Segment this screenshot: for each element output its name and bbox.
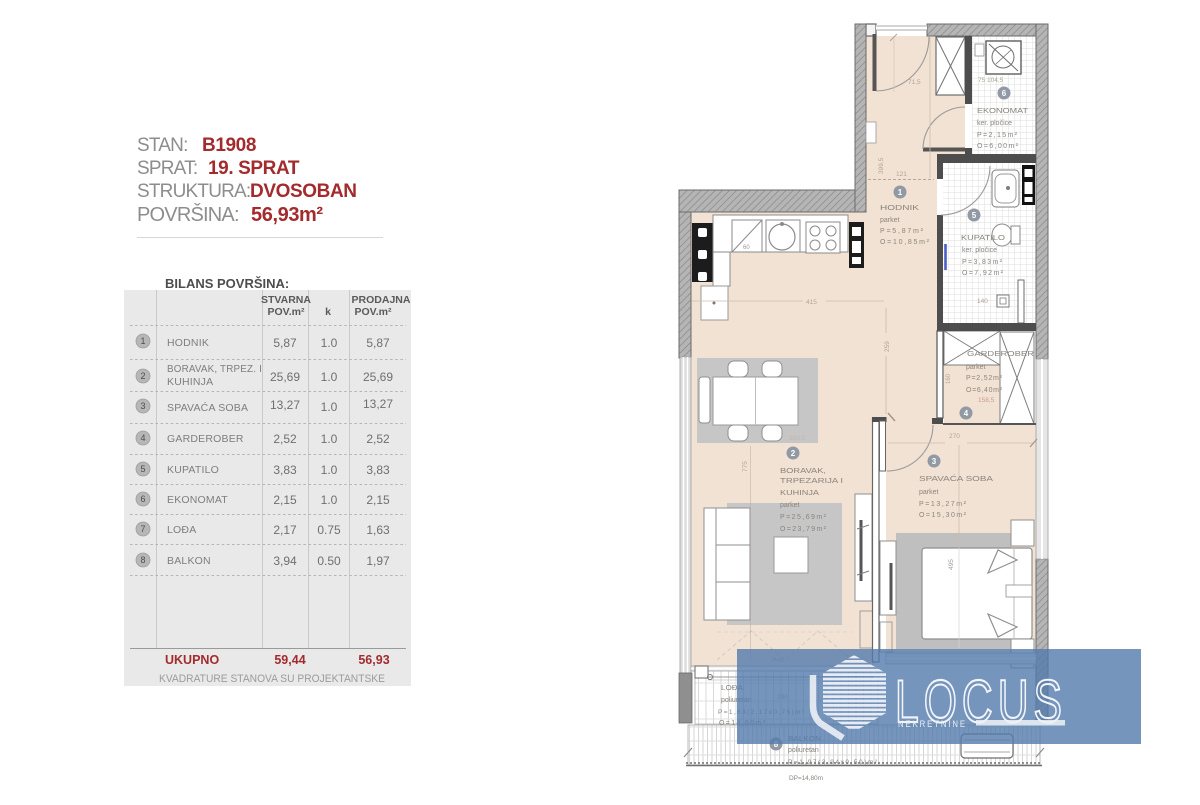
svg-text:3,83: 3,83 [273,463,297,477]
svg-text:1.0: 1.0 [321,370,338,384]
svg-text:2,15: 2,15 [366,493,390,507]
svg-text:1.0: 1.0 [321,493,338,507]
svg-text:O=6,40m²: O=6,40m² [966,387,1003,394]
svg-text:BORAVAK,: BORAVAK, [780,466,826,475]
svg-text:KUHINJA: KUHINJA [780,488,820,497]
svg-text:SPAVAĆA SOBA: SPAVAĆA SOBA [167,401,248,414]
svg-text:5,87: 5,87 [273,336,297,350]
svg-text:4: 4 [140,433,145,443]
svg-text:495: 495 [948,559,955,570]
svg-text:poliuretan: poliuretan [788,747,819,754]
svg-text:3,94: 3,94 [273,554,297,568]
svg-text:1.0: 1.0 [321,432,338,446]
svg-text:56,93: 56,93 [358,653,389,667]
svg-text:STVARNA: STVARNA [261,294,311,306]
svg-text:NEKRETNINE: NEKRETNINE [898,719,967,729]
svg-text:75 104,5: 75 104,5 [978,77,1004,84]
svg-text:O=7,92m²: O=7,92m² [962,270,1004,277]
svg-text:2,52: 2,52 [273,432,297,446]
svg-text:POVRŠINA:: POVRŠINA: [137,203,239,226]
svg-text:303,5: 303,5 [789,435,806,442]
svg-text:140: 140 [977,298,988,305]
svg-text:P=3,83m²: P=3,83m² [962,259,1003,266]
svg-text:415: 415 [806,299,817,306]
svg-text:25,69: 25,69 [270,370,300,384]
svg-text:GARDEROBER: GARDEROBER [967,349,1035,358]
svg-text:1: 1 [898,188,903,197]
svg-text:5,87: 5,87 [366,336,390,350]
svg-text:parket: parket [780,502,800,509]
svg-text:parket: parket [966,364,986,371]
svg-text:5: 5 [972,211,977,220]
svg-text:1.0: 1.0 [321,463,338,477]
svg-text:P=2,15m²: P=2,15m² [977,132,1018,139]
svg-text:19. SPRAT: 19. SPRAT [208,158,300,179]
svg-text:O=23,79m²: O=23,79m² [780,526,827,533]
svg-text:EKONOMAT: EKONOMAT [977,106,1028,115]
svg-text:STRUKTURA:: STRUKTURA: [137,181,250,202]
svg-text:6: 6 [1002,89,1007,98]
svg-text:BORAVAK, TRPEZ. I: BORAVAK, TRPEZ. I [167,363,262,375]
svg-text:1.0: 1.0 [321,400,338,414]
svg-text:KUPATILO: KUPATILO [167,464,219,476]
svg-text:59,44: 59,44 [274,653,305,667]
svg-text:25,69: 25,69 [363,370,393,384]
svg-text:259: 259 [884,341,891,352]
svg-text:P=1,97(3,94x0,50)m²: P=1,97(3,94x0,50)m² [788,759,878,766]
svg-text:5: 5 [140,464,145,474]
svg-text:0.75: 0.75 [317,523,341,537]
svg-text:1.0: 1.0 [321,336,338,350]
svg-text:121: 121 [896,171,907,178]
svg-text:158,5: 158,5 [978,397,995,404]
svg-text:775: 775 [742,461,749,472]
svg-text:270: 270 [949,433,960,440]
svg-text:6: 6 [140,494,145,504]
svg-text:KUHINJA: KUHINJA [167,376,213,388]
svg-text:2,15: 2,15 [273,493,297,507]
svg-text:LOĐA: LOĐA [167,524,196,536]
svg-text:HODNIK: HODNIK [880,203,919,212]
svg-text:2: 2 [140,371,145,381]
svg-text:STAN:: STAN: [137,135,188,156]
svg-text:DP=14,80m: DP=14,80m [789,775,823,782]
svg-text:POV.m²: POV.m² [268,306,305,318]
svg-text:BALKON: BALKON [167,555,211,567]
svg-text:k: k [325,306,331,318]
svg-text:B1908: B1908 [202,135,256,156]
svg-text:SPAVAĆA SOBA: SPAVAĆA SOBA [919,474,994,483]
svg-text:3: 3 [932,457,937,466]
svg-text:399,5: 399,5 [878,157,885,174]
svg-text:UKUPNO: UKUPNO [165,653,219,667]
svg-text:1: 1 [140,336,145,346]
svg-text:SPRAT:: SPRAT: [137,158,197,179]
svg-text:2,17: 2,17 [273,523,297,537]
svg-text:ker. pločice: ker. pločice [962,247,997,254]
svg-text:P=2,52m²: P=2,52m² [966,375,1003,382]
svg-text:13,27: 13,27 [270,398,300,412]
svg-text:ker. pločice: ker. pločice [977,120,1012,127]
svg-text:GARDEROBER: GARDEROBER [167,433,244,445]
svg-text:O=6,00m²: O=6,00m² [977,143,1019,150]
svg-text:1,97: 1,97 [366,554,390,568]
svg-text:KVADRATURE STANOVA SU PROJEKTA: KVADRATURE STANOVA SU PROJEKTANTSKE [159,673,385,685]
svg-text:POV.m²: POV.m² [355,306,392,318]
svg-text:DVOSOBAN: DVOSOBAN [250,181,357,202]
svg-text:EKONOMAT: EKONOMAT [167,494,228,506]
svg-text:HODNIK: HODNIK [167,337,209,349]
svg-text:KUPATILO: KUPATILO [961,233,1005,242]
svg-text:3: 3 [140,401,145,411]
svg-text:P=25,69m²: P=25,69m² [780,514,827,521]
svg-text:13,27: 13,27 [363,397,393,411]
svg-text:56,93m²: 56,93m² [251,204,323,226]
svg-text:160: 160 [946,373,952,384]
svg-text:O=15,30m²: O=15,30m² [919,512,967,519]
svg-text:71,5: 71,5 [908,79,921,86]
svg-text:O=10,85m²: O=10,85m² [880,239,930,246]
svg-text:1,63: 1,63 [366,523,390,537]
svg-text:TRPEZARIJA I: TRPEZARIJA I [780,476,843,485]
svg-text:P=5,87m²: P=5,87m² [880,228,924,235]
svg-text:parket: parket [880,217,900,224]
svg-text:8: 8 [140,555,145,565]
svg-text:P=13,27m²: P=13,27m² [919,501,967,508]
svg-text:parket: parket [919,489,939,496]
svg-text:4: 4 [964,409,969,418]
svg-text:2,52: 2,52 [366,432,390,446]
svg-text:3,83: 3,83 [366,463,390,477]
svg-text:BILANS POVRŠINA:: BILANS POVRŠINA: [165,276,289,291]
svg-text:2: 2 [791,449,796,458]
svg-text:7: 7 [140,524,145,534]
svg-text:60: 60 [743,245,750,251]
svg-text:PRODAJNA: PRODAJNA [352,294,411,306]
svg-text:0.50: 0.50 [317,554,341,568]
